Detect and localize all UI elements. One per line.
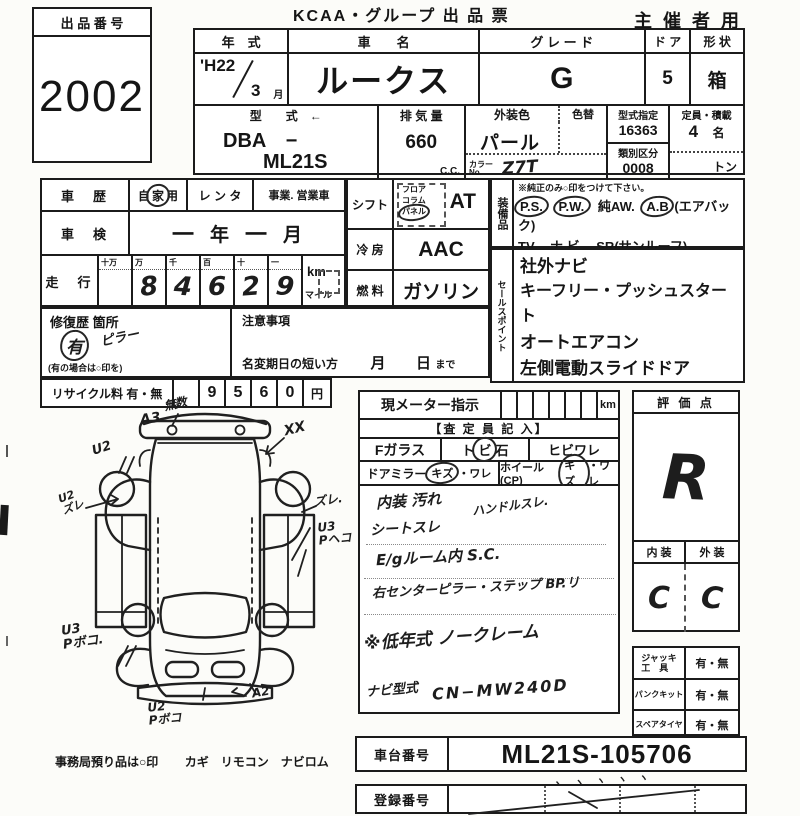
mirror-opt-ware: ・ワレ (458, 465, 491, 481)
notes-box: 内装 汚れ ハンドルスレ. シートスレ E/gルーム内 S.C. 右センターピラ… (358, 486, 620, 714)
evaluation-label: 評 価 点 (634, 392, 738, 414)
month-unit: 月 (273, 86, 283, 101)
ac-label: 冷 房 (348, 230, 394, 269)
equipment-ab: A.B (644, 199, 670, 214)
fglass-opt-circled: ビ (476, 440, 493, 459)
color-cell: 外装色 色替 パール カラー No. Z7T (466, 106, 608, 179)
registration-row: 登録番号 (355, 784, 747, 814)
fglass-opt-post: 石 (496, 440, 509, 459)
car-name: ルークス (289, 54, 480, 104)
diagram-annotation-a2: A2 (251, 685, 271, 700)
year-value: 'H22 (200, 56, 235, 76)
meter-unit: km (596, 392, 618, 418)
registration-value-area (449, 786, 745, 812)
odo-header-2: 千 (167, 256, 199, 270)
shift-option-floor: フロア (402, 185, 444, 196)
color-header: 外装色 (466, 106, 558, 122)
history-label: 車 歴 (42, 180, 130, 210)
displacement-unit: C.C. (440, 166, 460, 177)
inspection-year-value: 一 (172, 217, 194, 249)
meter-label: 現メーター指示 (360, 392, 500, 418)
note-no-claim: ※低年式 ノークレーム (364, 624, 540, 654)
lot-number-box: 出 品 番 号 2002 (32, 7, 152, 163)
sales-item-1: 社外ナビ (520, 254, 737, 280)
model-header: 型 式 ← (195, 106, 377, 124)
meter-cell-1 (500, 392, 516, 418)
shift-options: フロア コラム パネル (397, 183, 446, 227)
lot-number-value: 2002 (34, 37, 150, 157)
shape-value: 箱 (691, 54, 743, 104)
sales-item-3: オートエアコン (520, 330, 737, 356)
odo-mile-checkbox (318, 270, 340, 294)
scan-artifact-dash-2 (6, 636, 8, 646)
capacity-unit: 名 (713, 126, 725, 140)
equipment-line1: P.S. P.W. 純AW. A.B (エアバック) (518, 196, 739, 234)
capacity-header: 定員・積載 (670, 106, 743, 122)
wheel-cell: ホイール(CP) キズ ・ワレ (500, 462, 618, 484)
wheel-opt-ware: ・ワレ (588, 457, 618, 489)
mirror-opt-kizu: キズ (429, 465, 455, 481)
color-value: パール (480, 128, 540, 155)
odo-header-0: 十万 (99, 256, 131, 270)
navi-model-label: ナビ型式 (366, 682, 419, 700)
interior-score: C (634, 564, 686, 632)
exterior-score: C (684, 562, 741, 633)
month-value: 3 (251, 81, 260, 101)
year-cell: 'H22 3 月 (195, 54, 289, 104)
type-code-value: 16363 (608, 122, 668, 138)
lot-number-label: 出 品 番 号 (34, 9, 150, 37)
note-engine-room: E/gルーム内 S.C. (376, 547, 501, 569)
odo-col-5: 一9 (269, 256, 303, 307)
odo-header-3: 百 (201, 256, 233, 270)
diagram-annotation-a3: A3 (139, 411, 161, 428)
note-handle-wear: ハンドルスレ. (471, 495, 549, 518)
spare-tire-value: 有・無 (686, 711, 738, 738)
wheel-opt-kizu: キズ (562, 457, 586, 489)
mileage-label: 走 行 (42, 256, 99, 307)
odo-col-2: 千4 (167, 256, 201, 307)
custody-note: 事務局預り品は○印 (55, 755, 158, 769)
sales-label: セールスポイント (492, 250, 514, 381)
drivetrain-block: シフト フロア コラム パネル AT 冷 房 AAC 燃 料 ガソリン (346, 178, 490, 307)
wheel-label: ホイール(CP) (500, 459, 560, 487)
load-unit: トン (713, 158, 737, 175)
year-header: 年 式 (195, 30, 289, 52)
history-block: 車 歴 自家用 レ ン タ 事業. 営業車 車 検 一 年 一 月 走 行 十万… (40, 178, 346, 307)
history-business: 事業. 営業車 (254, 180, 344, 210)
odo-col-1: 万8 (133, 256, 167, 307)
vin-row: 車台番号 ML21S-105706 (355, 736, 747, 772)
puncture-kit-label: パンクキット (634, 680, 686, 709)
odo-digit-1: 8 (131, 268, 166, 305)
equipment-label: 装備品 (492, 180, 514, 246)
equipment-aw: 純AW. (598, 199, 635, 214)
history-private: 自家用 (130, 180, 188, 210)
vin-label: 車台番号 (357, 738, 449, 770)
shift-value: AT (450, 190, 476, 214)
meter-row: 現メーター指示 km (358, 390, 620, 420)
odo-digit-2: 4 (166, 269, 200, 305)
history-rental: レ ン タ (188, 180, 254, 210)
grade-value: G (480, 54, 646, 104)
note-interior-dirt: 内装 汚れ (376, 492, 442, 512)
capacity-value: 4 (689, 122, 698, 141)
history-private-circled: 家 (150, 187, 166, 204)
sales-item-4: 左側電動スライドドア (520, 356, 737, 382)
inspection-value: 一 年 一 月 (130, 212, 344, 254)
fglass-label: Fガラス (360, 439, 442, 460)
vin-value: ML21S-105706 (449, 738, 745, 770)
sheet-title: KCAA・グループ 出 品 票 (293, 2, 510, 26)
inspector-strip: 【査 定 員 記 入】 (358, 420, 620, 439)
custody-line: 事務局預り品は○印 カギ リモコン ナビロム (55, 753, 329, 771)
meter-cell-3 (532, 392, 548, 418)
odo-digit-header-4: 十 (235, 256, 267, 270)
name-header: 車 名 (289, 30, 480, 52)
exterior-label: 外 装 (686, 542, 738, 562)
fuel-label: 燃 料 (348, 271, 394, 309)
rename-day: 日 (416, 355, 431, 372)
shift-label: シフト (348, 180, 394, 228)
color-no-label: カラー No. (469, 161, 493, 177)
jack-value: 有・無 (686, 648, 738, 678)
jack-label: ジャッキ 工 具 (634, 648, 686, 678)
class-value: 0008 (608, 160, 668, 176)
custody-items: カギ リモコン ナビロム (185, 755, 329, 769)
odo-digit-5: 9 (267, 268, 302, 305)
displacement-value: 660 (379, 132, 464, 154)
type-code-cell: 型式指定 16363 類別区分 0008 (608, 106, 670, 179)
evaluation-score: R (632, 412, 740, 542)
diagram-annotation-u3-heko: U3 Pヘコ (317, 518, 352, 546)
color-divider (558, 122, 560, 153)
note-pillar-step: 右センターピラー・ステップ BP.リ (372, 577, 580, 601)
type-code-header: 型式指定 (608, 106, 668, 122)
grade-header: グ レ ー ド (480, 30, 646, 52)
rename-suffix: まで (435, 360, 455, 371)
diagram-annotation-u2-boko: U2 Pボコ (147, 698, 182, 726)
car-diagram: A3 無数 XX U2 U2 ズレ ズレ. U3 Pヘコ U3 Pボコ. U2 … (60, 400, 360, 740)
shift-cell: フロア コラム パネル AT (394, 180, 488, 228)
navi-model-value: CN−MW240D (432, 677, 570, 703)
displacement-header: 排 気 量 (379, 106, 464, 124)
inspection-month-unit: 月 (283, 220, 302, 247)
evaluation-box: 評 価 点 R 内 装 外 装 C C (632, 390, 740, 632)
door-header: ド ア (646, 30, 692, 52)
scan-artifact-mark (0, 505, 9, 535)
shape-header: 形 状 (691, 30, 743, 52)
ac-value: AAC (394, 230, 488, 269)
tools-box: ジャッキ 工 具 有・無 パンクキット 有・無 スペアタイヤ 有・無 (632, 646, 740, 736)
doors-value: 5 (646, 54, 692, 104)
sales-box: セールスポイント 社外ナビ キーフリー・プッシュスタート オートエアコン 左側電… (490, 248, 745, 383)
class-header: 類別区分 (608, 144, 668, 160)
registration-label: 登録番号 (357, 786, 449, 812)
color-change-header: 色替 (558, 106, 606, 122)
fuel-value: ガソリン (394, 271, 488, 309)
odo-digit-4: 2 (234, 269, 268, 305)
meter-cell-4 (548, 392, 564, 418)
vehicle-table: 年 式 車 名 グ レ ー ド ド ア 形 状 'H22 3 月 ルークス G … (193, 28, 745, 175)
mirror-wheel-row: ドアミラー キズ ・ワレ ホイール(CP) キズ ・ワレ (358, 462, 620, 486)
equipment-note: ※純正のみ○印をつけて下さい。 (518, 181, 739, 194)
displacement-cell: 排 気 量 660 C.C. (379, 106, 466, 179)
capacity-divider (670, 151, 743, 153)
puncture-kit-value: 有・無 (686, 680, 738, 709)
equipment-pw: P.W. (557, 199, 587, 214)
odo-unit-cell: km マイル (303, 256, 344, 307)
meter-cell-2 (516, 392, 532, 418)
color-row-divider (466, 153, 606, 155)
repair-box: 修復歴 箇所 有 ピラー (有の場合は○印を) (40, 307, 232, 378)
odo-col-3: 百6 (201, 256, 235, 307)
fglass-option-stone: トビ石 (442, 439, 530, 460)
registration-cross-line (449, 786, 745, 816)
rename-label: 名変期日の短い方 (242, 357, 338, 371)
inspection-month-value: 一 (245, 217, 267, 249)
spare-tire-label: スペアタイヤ (634, 711, 686, 738)
meter-cell-5 (564, 392, 580, 418)
model-prefix: DBA − (223, 124, 297, 153)
color-no-value: Z7T (501, 157, 538, 179)
sales-item-2: キーフリー・プッシュスタート (520, 280, 737, 330)
note-seat-wear: シートスレ (370, 520, 441, 538)
model-code: ML21S (263, 151, 327, 174)
interior-label: 内 装 (634, 542, 686, 562)
odo-col-4: 十2 (235, 256, 269, 307)
scan-artifact-dash (6, 445, 8, 457)
odo-digit-3: 6 (201, 270, 233, 304)
mirror-cell: ドアミラー キズ ・ワレ (360, 462, 500, 484)
equipment-ps: P.S. (518, 199, 545, 214)
capacity-cell: 定員・積載 4 名 トン (670, 106, 743, 179)
repair-note: (有の場合は○印を) (48, 361, 122, 374)
mirror-label: ドアミラー (367, 465, 427, 482)
caution-label: 注意事項 (232, 309, 488, 329)
shift-option-panel: パネル (402, 207, 426, 218)
equipment-box: 装備品 ※純正のみ○印をつけて下さい。 P.S. P.W. 純AW. A.B (… (490, 178, 745, 248)
diagram-annotation-u3-boko: U3 Pボコ. (60, 619, 104, 652)
caution-box: 注意事項 名変期日の短い方 月 日 まで (232, 307, 490, 378)
repair-mark: 有 (64, 333, 85, 358)
inspection-label: 車 検 (42, 212, 130, 254)
odo-col-0: 十万 (99, 256, 133, 307)
meter-cell-6 (580, 392, 596, 418)
model-cell: 型 式 ← DBA − ML21S (195, 106, 379, 179)
rename-month: 月 (370, 355, 385, 372)
inspection-year-unit: 年 (210, 220, 229, 247)
